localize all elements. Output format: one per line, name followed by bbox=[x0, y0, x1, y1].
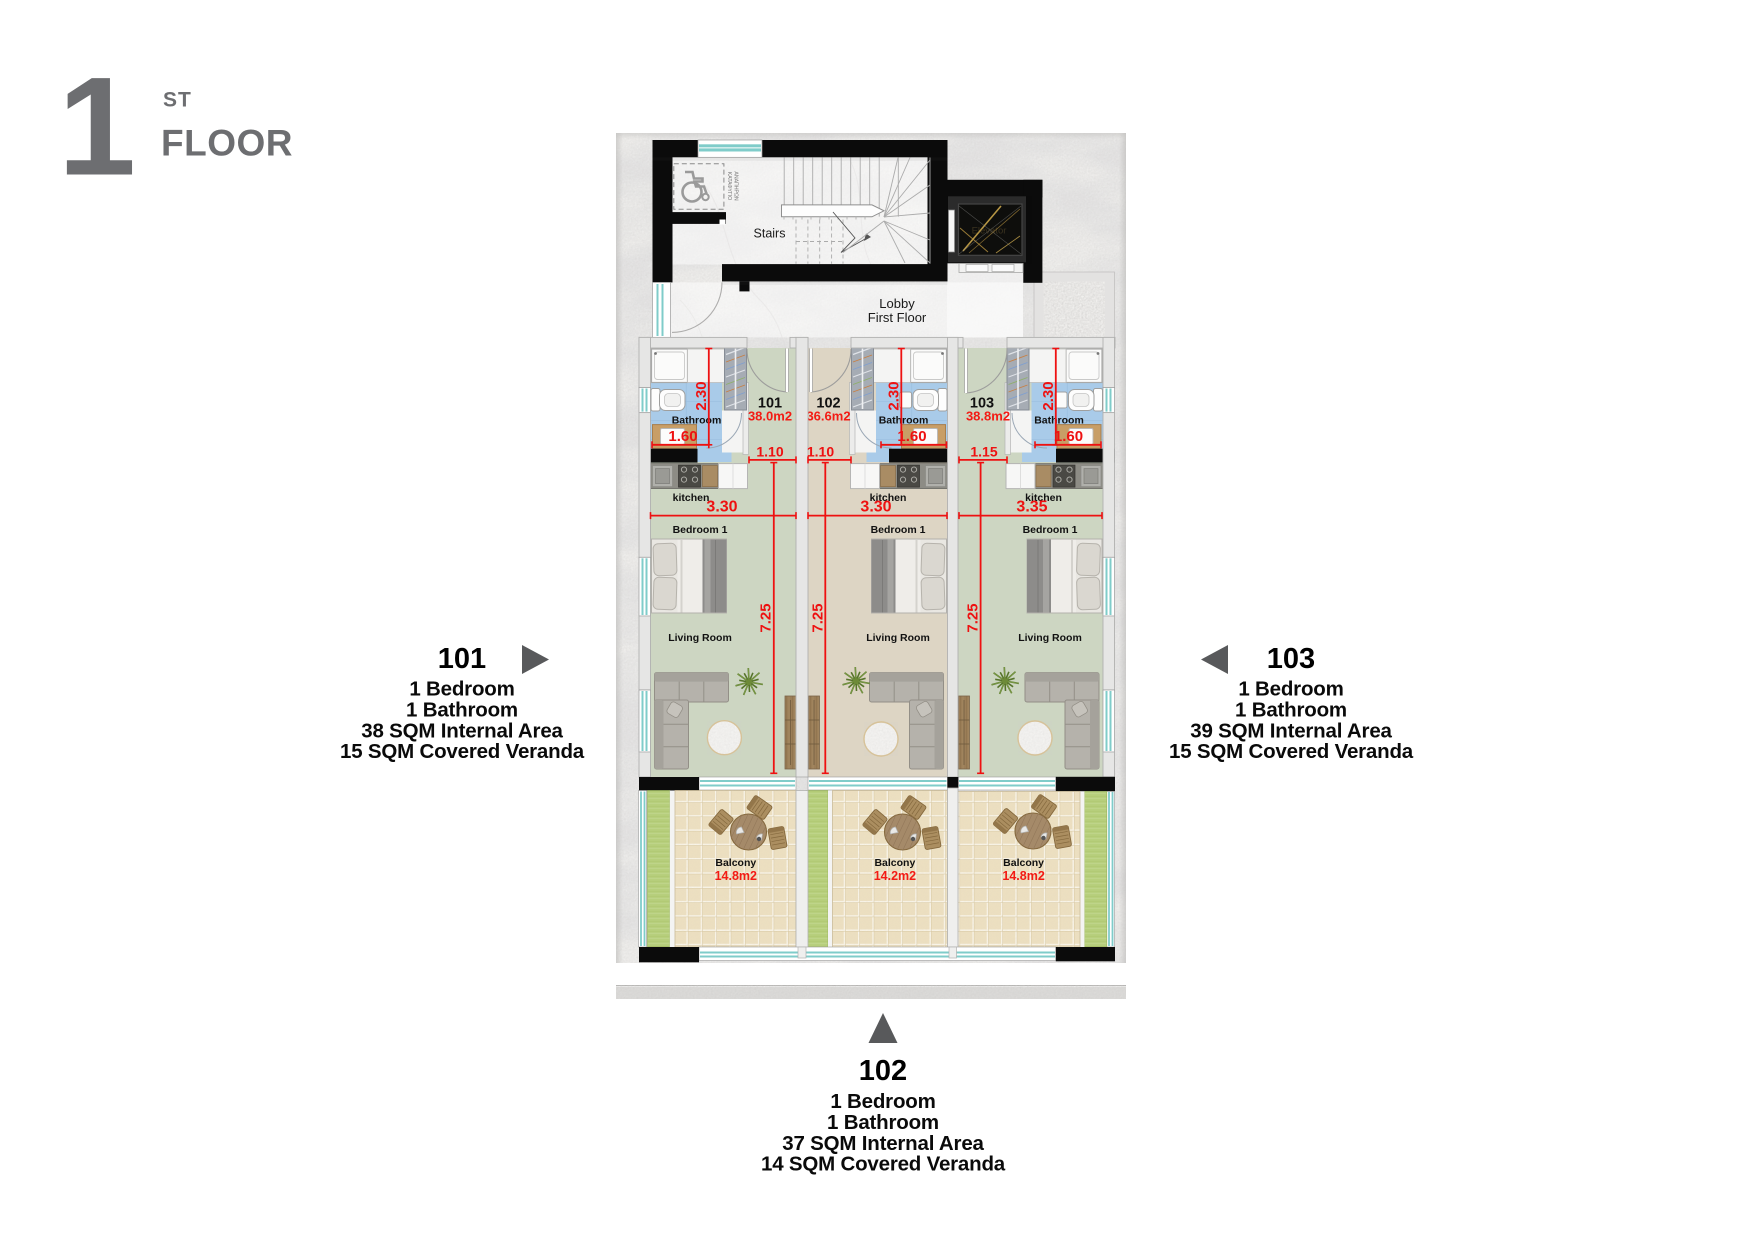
svg-text:36.6m2: 36.6m2 bbox=[806, 408, 850, 423]
svg-text:14 SQM Covered Veranda: 14 SQM Covered Veranda bbox=[761, 1153, 1006, 1176]
svg-text:1 Bathroom: 1 Bathroom bbox=[406, 698, 518, 721]
svg-text:Bedroom 1: Bedroom 1 bbox=[673, 524, 728, 536]
svg-text:kitchen: kitchen bbox=[673, 492, 710, 504]
svg-text:ΑΝΑΠΗΡΩΝ: ΑΝΑΠΗΡΩΝ bbox=[733, 171, 739, 200]
svg-text:Living Room: Living Room bbox=[1018, 632, 1082, 644]
svg-text:1 Bedroom: 1 Bedroom bbox=[1238, 678, 1343, 701]
svg-text:39 SQM Internal Area: 39 SQM Internal Area bbox=[1190, 719, 1392, 742]
svg-text:15 SQM Covered Veranda: 15 SQM Covered Veranda bbox=[340, 740, 585, 763]
svg-text:7.25: 7.25 bbox=[809, 603, 826, 632]
svg-text:ST: ST bbox=[163, 89, 192, 112]
svg-text:Bedroom 1: Bedroom 1 bbox=[871, 524, 926, 536]
svg-text:Elevator: Elevator bbox=[972, 226, 1007, 237]
svg-text:7.25: 7.25 bbox=[758, 603, 775, 632]
svg-text:Lobby: Lobby bbox=[879, 296, 915, 311]
svg-text:1.10: 1.10 bbox=[807, 444, 834, 460]
svg-text:37 SQM Internal Area: 37 SQM Internal Area bbox=[782, 1132, 984, 1155]
svg-text:Bathroom: Bathroom bbox=[672, 414, 722, 426]
svg-text:Balcony: Balcony bbox=[1003, 857, 1044, 869]
svg-text:3.35: 3.35 bbox=[1016, 499, 1047, 516]
svg-text:101: 101 bbox=[438, 643, 486, 675]
svg-text:First Floor: First Floor bbox=[868, 310, 927, 325]
svg-text:15 SQM Covered Veranda: 15 SQM Covered Veranda bbox=[1169, 740, 1414, 763]
svg-text:1 Bathroom: 1 Bathroom bbox=[827, 1111, 939, 1134]
svg-text:14.8m2: 14.8m2 bbox=[715, 869, 757, 883]
svg-text:102: 102 bbox=[859, 1055, 907, 1087]
svg-text:14.2m2: 14.2m2 bbox=[874, 869, 916, 883]
svg-text:103: 103 bbox=[1267, 643, 1315, 675]
svg-text:14.8m2: 14.8m2 bbox=[1002, 869, 1044, 883]
svg-text:3.30: 3.30 bbox=[706, 499, 737, 516]
svg-text:Balcony: Balcony bbox=[874, 857, 915, 869]
svg-text:1.15: 1.15 bbox=[970, 444, 997, 460]
svg-text:1 Bedroom: 1 Bedroom bbox=[409, 678, 514, 701]
svg-text:1 Bedroom: 1 Bedroom bbox=[830, 1090, 935, 1113]
svg-text:7.25: 7.25 bbox=[965, 603, 982, 632]
svg-text:Bathroom: Bathroom bbox=[1034, 414, 1084, 426]
svg-text:Bedroom 1: Bedroom 1 bbox=[1023, 524, 1078, 536]
svg-text:38.0m2: 38.0m2 bbox=[748, 408, 792, 423]
svg-text:Stairs: Stairs bbox=[754, 227, 786, 241]
svg-text:2.30: 2.30 bbox=[885, 381, 902, 410]
svg-text:1 Bathroom: 1 Bathroom bbox=[1235, 698, 1347, 721]
svg-text:1.60: 1.60 bbox=[668, 428, 697, 445]
svg-text:2.30: 2.30 bbox=[1040, 381, 1057, 410]
svg-text:Balcony: Balcony bbox=[715, 857, 756, 869]
svg-text:1.10: 1.10 bbox=[756, 444, 783, 460]
svg-text:Living Room: Living Room bbox=[866, 632, 930, 644]
svg-text:Bathroom: Bathroom bbox=[879, 414, 929, 426]
svg-text:1: 1 bbox=[58, 48, 136, 205]
svg-text:ΚΑΤΑΦΥΓΙΟ: ΚΑΤΑΦΥΓΙΟ bbox=[726, 172, 732, 200]
svg-text:38 SQM Internal Area: 38 SQM Internal Area bbox=[361, 719, 563, 742]
svg-text:FLOOR: FLOOR bbox=[161, 123, 293, 164]
svg-text:2.30: 2.30 bbox=[693, 381, 710, 410]
svg-text:3.30: 3.30 bbox=[860, 499, 891, 516]
svg-text:1.60: 1.60 bbox=[897, 428, 926, 445]
svg-text:1.60: 1.60 bbox=[1054, 428, 1083, 445]
svg-text:Living Room: Living Room bbox=[668, 632, 732, 644]
svg-text:38.8m2: 38.8m2 bbox=[966, 408, 1010, 423]
